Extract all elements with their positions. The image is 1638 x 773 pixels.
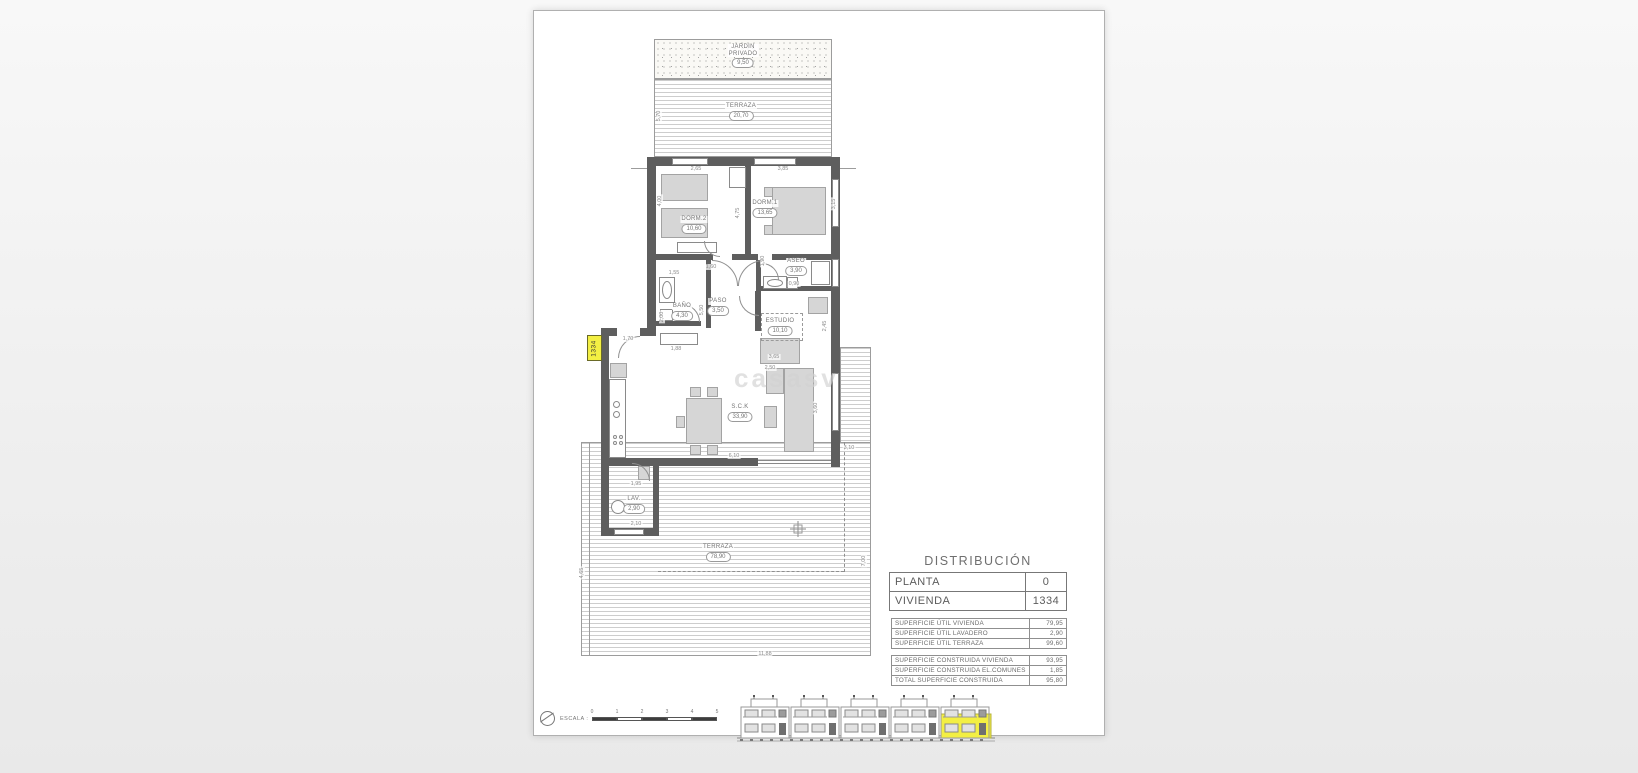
superficie-util-table: SUPERFICIE ÚTIL VIVIENDA79,95SUPERFICIE …	[891, 618, 1067, 649]
scale-segment	[692, 717, 717, 721]
label-cell: PLANTA	[890, 573, 1026, 592]
wall	[732, 254, 758, 260]
label-cell: SUPERFICIE CONSTRUIDA EL.COMUNES	[892, 666, 1030, 676]
dimension-label: 3,65	[768, 354, 781, 360]
hob-burner	[619, 435, 623, 439]
table-row: VIVIENDA1334	[890, 592, 1067, 611]
dimension-label: 1,88	[670, 346, 683, 352]
dimension-label: 3,15	[831, 198, 837, 211]
sink-oval	[767, 279, 783, 287]
dimension-label: 6,10	[728, 453, 741, 459]
scale-tick: 4	[691, 709, 694, 715]
room-name: JARDIN PRIVADO	[728, 44, 759, 57]
room-label-terraza-superior: TERRAZA20,70	[725, 103, 757, 121]
room-label-paso: PASO3,50	[707, 298, 729, 316]
room-label-estudio: ESTUDIO10,10	[765, 318, 796, 336]
room-name: TERRAZA	[725, 103, 757, 110]
value-cell: 93,95	[1030, 656, 1067, 666]
dimension-label: 4,65	[579, 567, 585, 580]
watermark: casasv	[734, 363, 839, 394]
room-name: ASEO	[786, 258, 806, 265]
room-label-lavadero: LAV.2,90	[623, 496, 645, 514]
room-label-dorm-1: DORM.113,65	[751, 200, 778, 218]
room-label-dorm-2: DORM.210,60	[680, 216, 707, 234]
room-label-terraza-principal: TERRAZA78,90	[702, 544, 734, 562]
label-cell: SUPERFICIE ÚTIL TERRAZA	[892, 639, 1030, 649]
dimension-label: 2,00	[659, 311, 665, 324]
dimension-label: 1,60	[705, 264, 718, 270]
wall	[656, 254, 713, 260]
compass-icon	[540, 711, 555, 726]
value-cell: 0	[1026, 573, 1067, 592]
wall	[647, 157, 656, 336]
furniture	[707, 387, 718, 397]
label-cell: SUPERFICIE ÚTIL LAVADERO	[892, 629, 1030, 639]
dimension-label: 1,95	[630, 481, 643, 487]
hob-burner	[619, 441, 623, 445]
scale-bar: ESCALA : 012345	[540, 705, 740, 731]
label-cell: TOTAL SUPERFICIE CONSTRUIDA	[892, 676, 1030, 686]
scale-segment	[642, 717, 667, 721]
table-row: TOTAL SUPERFICIE CONSTRUIDA95,80	[892, 676, 1067, 686]
label-cell: VIVIENDA	[890, 592, 1026, 611]
room-area-badge: 4,30	[671, 311, 693, 321]
door-arc	[739, 296, 759, 316]
dimension-label: 11,88	[757, 651, 772, 657]
glass-door	[758, 460, 831, 464]
terrace-edge-line	[589, 442, 590, 656]
window	[614, 529, 644, 535]
dimension-label: 4,75	[735, 207, 741, 220]
table-row: SUPERFICIE CONSTRUIDA VIVIENDA93,95	[892, 656, 1067, 666]
table-row: SUPERFICIE ÚTIL TERRAZA99,60	[892, 639, 1067, 649]
room-area-badge: 9,50	[732, 58, 754, 68]
wall-tick	[840, 168, 856, 169]
room-name: S.C.K	[730, 404, 749, 411]
room-area-badge: 10,60	[681, 224, 706, 234]
value-cell: 1334	[1026, 592, 1067, 611]
dimension-label: 1,90	[760, 255, 766, 268]
wall	[601, 328, 609, 536]
furniture	[808, 297, 828, 314]
room-name: TERRAZA	[702, 544, 734, 551]
scale-label: ESCALA :	[560, 716, 588, 722]
planta-vivienda-table: PLANTA0VIVIENDA1334	[889, 572, 1067, 611]
building-elevation-key	[737, 695, 995, 743]
room-area-badge: 3,50	[707, 306, 729, 316]
scale-segment	[592, 717, 617, 721]
table-row: SUPERFICIE CONSTRUIDA EL.COMUNES1,85	[892, 666, 1067, 676]
drain-symbol	[790, 521, 806, 537]
room-name: DORM.2	[680, 216, 707, 223]
room-label-bano: BAÑO4,30	[671, 303, 693, 321]
room-area-badge: 78,90	[705, 552, 730, 562]
furniture	[764, 406, 777, 428]
furniture	[610, 363, 627, 378]
room-label-salon-cocina: S.C.K33,90	[727, 404, 752, 422]
room-area-badge: 10,10	[767, 326, 792, 336]
dimension-label: 4,00	[657, 195, 663, 208]
dimension-label: 3,10	[843, 445, 856, 451]
value-cell: 99,60	[1030, 639, 1067, 649]
furniture	[676, 416, 685, 428]
terrace-side-area	[840, 347, 871, 443]
value-cell: 2,90	[1030, 629, 1067, 639]
room-name: DORM.1	[751, 200, 778, 207]
terrace-dashed-line-h	[658, 571, 844, 572]
furniture	[772, 187, 826, 235]
distribution-title: DISTRIBUCIÓN	[889, 554, 1067, 568]
room-label-aseo: ASEO3,90	[785, 258, 807, 276]
window	[672, 158, 708, 165]
scale-tick: 1	[616, 709, 619, 715]
scale-tick: 3	[666, 709, 669, 715]
dimension-label: 2,65	[690, 166, 703, 172]
scale-tick: 5	[716, 709, 719, 715]
room-area-badge: 33,90	[727, 412, 752, 422]
room-label-jardin-privado: JARDIN PRIVADO9,50	[728, 44, 759, 68]
dimension-label: 2,10	[630, 521, 643, 527]
scale-segment	[667, 717, 692, 721]
wall	[706, 260, 711, 328]
dimension-label: 5,50	[699, 304, 705, 317]
kitchen-sink	[613, 401, 620, 408]
fixture	[609, 379, 626, 458]
room-name: PASO	[708, 298, 727, 305]
furniture	[686, 398, 722, 444]
room-area-badge: 20,70	[728, 111, 753, 121]
dimension-label: 3,85	[777, 166, 790, 172]
value-cell: 1,85	[1030, 666, 1067, 676]
value-cell: 95,80	[1030, 676, 1067, 686]
table-row: SUPERFICIE ÚTIL LAVADERO2,90	[892, 629, 1067, 639]
furniture	[661, 174, 708, 201]
hob-burner	[613, 435, 617, 439]
room-name: BAÑO	[672, 303, 692, 310]
wall-tick	[631, 168, 647, 169]
scale-tick: 2	[641, 709, 644, 715]
scale-segment	[617, 717, 642, 721]
room-name: ESTUDIO	[765, 318, 796, 325]
kitchen-sink	[613, 411, 620, 418]
wall	[609, 458, 653, 466]
page-background: JARDIN PRIVADO9,50TERRAZA20,70DORM.210,6…	[0, 0, 1638, 773]
bath-oval	[662, 281, 672, 299]
furniture	[690, 387, 701, 397]
table-row: SUPERFICIE ÚTIL VIVIENDA79,95	[892, 619, 1067, 629]
fixture	[660, 333, 698, 345]
scale-tick: 0	[591, 709, 594, 715]
window	[832, 259, 839, 287]
fixture	[811, 261, 830, 285]
room-area-badge: 13,65	[752, 208, 777, 218]
superficie-construida-table: SUPERFICIE CONSTRUIDA VIVIENDA93,95SUPER…	[891, 655, 1067, 686]
terrace-dashed-line-v	[844, 442, 845, 572]
room-area-badge: 3,90	[785, 266, 807, 276]
table-row: PLANTA0	[890, 573, 1067, 592]
value-cell: 79,95	[1030, 619, 1067, 629]
label-cell: SUPERFICIE ÚTIL VIVIENDA	[892, 619, 1030, 629]
dimension-label: 7,00	[861, 555, 867, 568]
dimension-label: 2,45	[822, 320, 828, 333]
unit-number-badge: 1334	[587, 335, 602, 361]
label-cell: SUPERFICIE CONSTRUIDA VIVIENDA	[892, 656, 1030, 666]
room-name: LAV.	[626, 496, 641, 503]
dimension-label: 1,55	[668, 270, 681, 276]
dimension-label: 3,60	[813, 402, 819, 415]
wall	[653, 458, 758, 466]
furniture	[764, 225, 773, 235]
dimension-label: 0,90	[788, 281, 801, 287]
wall	[640, 328, 654, 336]
dimension-label: 5,70	[656, 110, 662, 123]
furniture	[764, 187, 773, 197]
wall	[653, 458, 659, 536]
drawing-sheet: JARDIN PRIVADO9,50TERRAZA20,70DORM.210,6…	[533, 10, 1105, 736]
furniture	[690, 445, 701, 455]
room-area-badge: 2,90	[623, 504, 645, 514]
fixture	[729, 167, 746, 188]
furniture	[760, 338, 800, 364]
unit-number-label: 1334	[591, 340, 598, 356]
furniture	[707, 445, 718, 455]
window	[754, 158, 796, 165]
hob-burner	[613, 441, 617, 445]
dimension-label: 1,70	[622, 336, 635, 342]
